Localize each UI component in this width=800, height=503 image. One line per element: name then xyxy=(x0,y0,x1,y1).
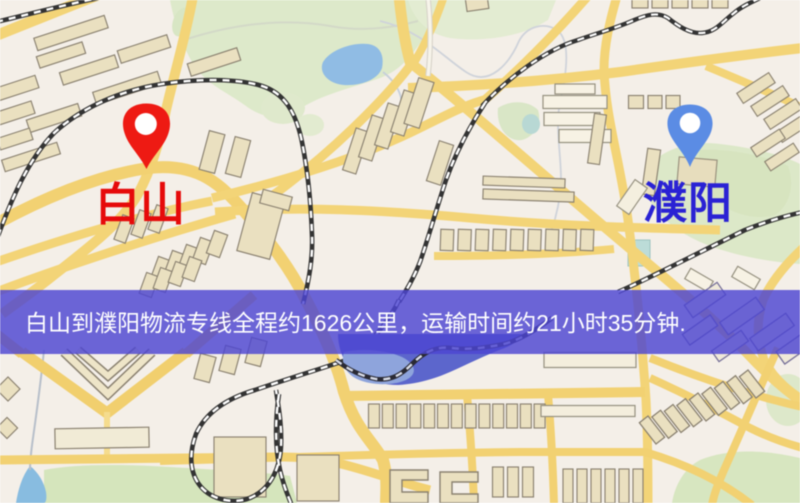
svg-text:白山到濮阳物流专线全程约1626公里，运输时间约21小时35: 白山到濮阳物流专线全程约1626公里，运输时间约21小时35分钟. xyxy=(25,310,686,336)
svg-text:白山: 白山 xyxy=(95,179,185,230)
svg-text:濮阳: 濮阳 xyxy=(643,179,733,228)
